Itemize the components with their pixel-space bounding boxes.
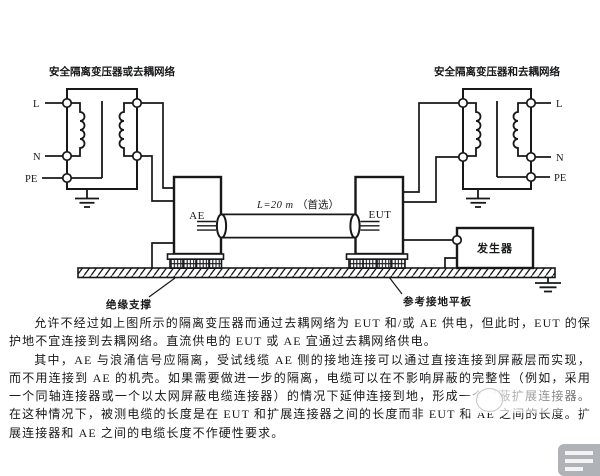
left-transformer-earth-icon xyxy=(75,189,99,207)
generator-output-terminal xyxy=(453,236,461,244)
right-primary-coil xyxy=(463,103,481,156)
right-PE-label: PE xyxy=(554,173,566,184)
ae-label: AE xyxy=(189,210,205,222)
ae-equipment xyxy=(152,177,224,268)
surge-generator xyxy=(403,228,533,268)
note-paragraph-1: 允许不经过如上图所示的隔离变压器而通过去耦网络为 EUT 和/或 AE 供电，但… xyxy=(9,314,591,351)
right-L-label: L xyxy=(556,99,562,110)
left-transformer-title: 安全隔离变压器或去耦网络 xyxy=(49,65,175,78)
terminal-circles xyxy=(63,99,535,182)
generator-ground-stub xyxy=(445,258,457,268)
corner-watermark xyxy=(558,444,600,476)
right-isolation-transformer xyxy=(463,89,551,207)
right-N-label: N xyxy=(556,153,564,164)
eut-label: EUT xyxy=(369,209,392,221)
figure-notes-text: 允许不经过如上图所示的隔离变压器而通过去耦网络为 EUT 和/或 AE 供电，但… xyxy=(9,314,591,442)
insulation-support-leader-line xyxy=(149,278,175,297)
test-setup-diagram: 安全隔离变压器或去耦网络 L N PE 安全隔离变压器和去耦网络 L xyxy=(0,0,600,312)
reference-ground-plane-label: 参考接地平板 xyxy=(403,295,472,308)
left-primary-coil xyxy=(67,103,85,156)
left-secondary-coil xyxy=(120,103,138,156)
generator-label: 发生器 xyxy=(476,241,513,255)
eut-cable-connector xyxy=(350,214,359,237)
right-secondary-coil xyxy=(514,103,532,156)
reference-ground-plane xyxy=(78,268,561,292)
cable-length-note: （首选） xyxy=(297,198,339,211)
eut-insulation-support xyxy=(349,259,405,268)
insulation-support-label: 绝缘支撑 xyxy=(106,298,152,311)
right-transformer-earth-icon xyxy=(466,189,490,207)
note-paragraph-2: 其中，AE 与浪涌信号应隔离，受试线缆 AE 侧的接地连接可以通过直接连接到屏蔽… xyxy=(9,351,591,442)
ground-plane-leader-line xyxy=(389,277,402,294)
plane-earth-icon xyxy=(535,278,561,292)
left-PE-label: PE xyxy=(25,174,37,185)
right-supply-wires xyxy=(403,103,463,202)
cable-length-label: L=20 m xyxy=(256,200,294,211)
left-N-label: N xyxy=(33,152,41,163)
ae-insulation-support xyxy=(170,259,222,268)
left-isolation-transformer xyxy=(42,89,137,207)
left-L-label: L xyxy=(33,99,39,110)
cable-under-test xyxy=(197,214,380,237)
figure-surge-test-setup-page: 安全隔离变压器或去耦网络 L N PE 安全隔离变压器和去耦网络 L xyxy=(0,0,600,476)
ae-cable-connector xyxy=(217,214,226,237)
left-supply-wires xyxy=(137,103,174,201)
ground-plane-strip xyxy=(78,268,555,278)
right-transformer-title: 安全隔离变压器和去耦网络 xyxy=(434,65,560,78)
